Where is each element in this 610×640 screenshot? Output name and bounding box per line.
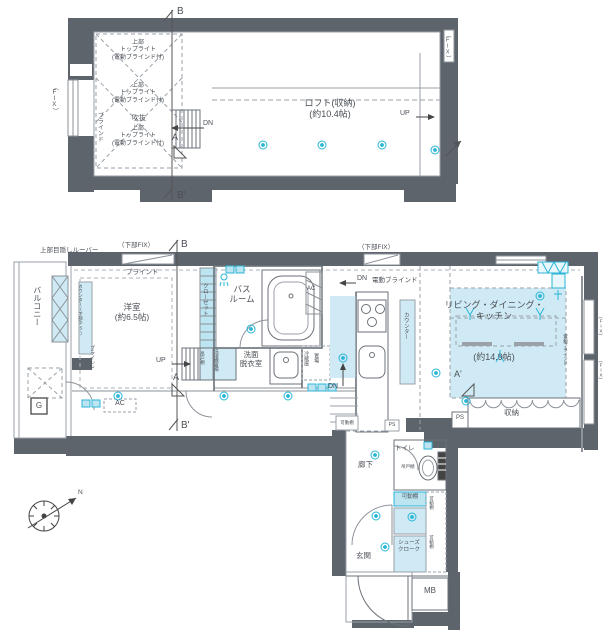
corridor-label: 廊下 <box>358 460 373 469</box>
lower-fix-right-label: （下部FIX） <box>358 244 394 252</box>
storage-closet <box>468 398 580 428</box>
washroom-label: 洗面 脱衣室 <box>232 350 270 368</box>
compass-north-label: N <box>78 489 83 497</box>
balcony-hatch-panel <box>52 276 68 342</box>
bathtub <box>262 270 320 346</box>
fix-right-label-2: （FIX） <box>598 358 603 382</box>
toilet-fixture <box>419 452 446 480</box>
marker-a-prime-label: A' <box>454 369 462 380</box>
power-blind-window-label: 電動ブラインド <box>372 277 418 285</box>
lower-marker-a: A <box>173 372 179 383</box>
lower-marker-b: B <box>181 239 188 251</box>
upper-marker-b-prime: B' <box>177 190 186 202</box>
bath-door-arc <box>240 320 268 348</box>
counter-kitchen-label: カウンター <box>402 312 409 340</box>
balcony-label: バルコニー <box>32 286 42 326</box>
movable-shelf-label-4: 可動棚 <box>429 535 434 549</box>
storage-label: 収納 <box>504 408 519 417</box>
loft-room-label: ロフト(収納) (約10.4帖) <box>290 98 370 120</box>
lower-section-line-b <box>169 240 178 431</box>
kitchen-counter <box>356 292 388 432</box>
bathroom-label: バス ルーム <box>220 284 264 305</box>
gas-box-label: G <box>31 401 47 411</box>
movable-shelf-label-2: 可動棚 <box>396 494 424 501</box>
floorplan-page: { "colors": { "wall": "#5d646c", "line":… <box>0 0 610 640</box>
loft-downlights <box>259 141 439 154</box>
meter-box-label: MB <box>412 586 448 596</box>
counter-ps-label: カウンター(下部PS) <box>78 284 83 336</box>
power-blind-right-label: 電動ブラインド <box>563 334 568 366</box>
main-up-label: UP <box>156 357 166 366</box>
genkan-door-arc <box>352 505 392 545</box>
washbasin <box>270 348 302 384</box>
movable-shelf-label-3: 可動棚 <box>429 496 434 510</box>
upper-fix-left-label: （FIX） <box>50 84 57 114</box>
toplight-label-3: 上部 トップライト (電動ブラインド付) <box>98 126 178 148</box>
ac-wall-label: AC <box>307 286 315 293</box>
western-room-label: 洋室 (約6.5帖) <box>100 302 164 323</box>
lower-fix-left-label: （下部FIX） <box>118 242 154 250</box>
fridge-label-2: 置場 <box>313 353 319 363</box>
balcony-equipment-space <box>28 368 62 398</box>
kitchen-dn-top-label: DN <box>357 275 367 284</box>
movable-shelf-label-1: 可動棚 <box>336 420 358 425</box>
washroom-door-arc <box>186 391 212 417</box>
kitchen-dn-mid-label: DN <box>328 383 338 392</box>
hanging-shelf-label: 吊戸棚 <box>200 351 205 365</box>
upper-marker-b: B <box>177 6 184 18</box>
ac-room-label: AC <box>104 400 136 409</box>
toplight-label-2: 上部 トップライト (電動ブラインド付) <box>98 83 178 105</box>
entrance-label: 玄関 <box>356 551 371 560</box>
upper-fix-right-label: （FIX） <box>444 32 451 61</box>
louver-label: 上部目隠しルーバー <box>40 247 98 255</box>
fix-right-label-1: （FIX） <box>598 314 603 338</box>
toilet-shelf-label: 吊戸棚 <box>401 464 415 469</box>
toplight-label-1: 上部 トップライト (電動ブラインド付) <box>98 40 178 62</box>
loft-up-label: UP <box>400 110 410 119</box>
washer-space-label: 洗濯機置場 <box>214 349 219 372</box>
ps-hall-label: PS <box>385 422 399 428</box>
blind-side-label: ブラインド <box>89 345 95 370</box>
ps-storage-label: PS <box>452 415 468 422</box>
toilet-label: トイレ <box>395 445 415 453</box>
void-label: 吹抜 <box>132 115 146 124</box>
fridge-label-1: 冷蔵庫 <box>303 351 309 366</box>
compass-rose <box>28 498 76 531</box>
shoes-closet-label: シューズ クローク <box>392 540 426 553</box>
closet-label: クローゼット <box>201 283 208 316</box>
loft-up-arrow <box>416 114 435 120</box>
entrance-door <box>358 576 408 626</box>
ldk-size-label: (約14.9帖) <box>444 352 544 363</box>
blind-window-label: ブラインド <box>126 269 159 277</box>
loft-dn-label: DN <box>203 120 213 129</box>
ldk-name-label: リビング・ダイニング・ キッチン <box>424 300 564 322</box>
lower-marker-b-prime: B' <box>181 420 190 432</box>
lower-marker-a-triangle <box>172 384 184 396</box>
